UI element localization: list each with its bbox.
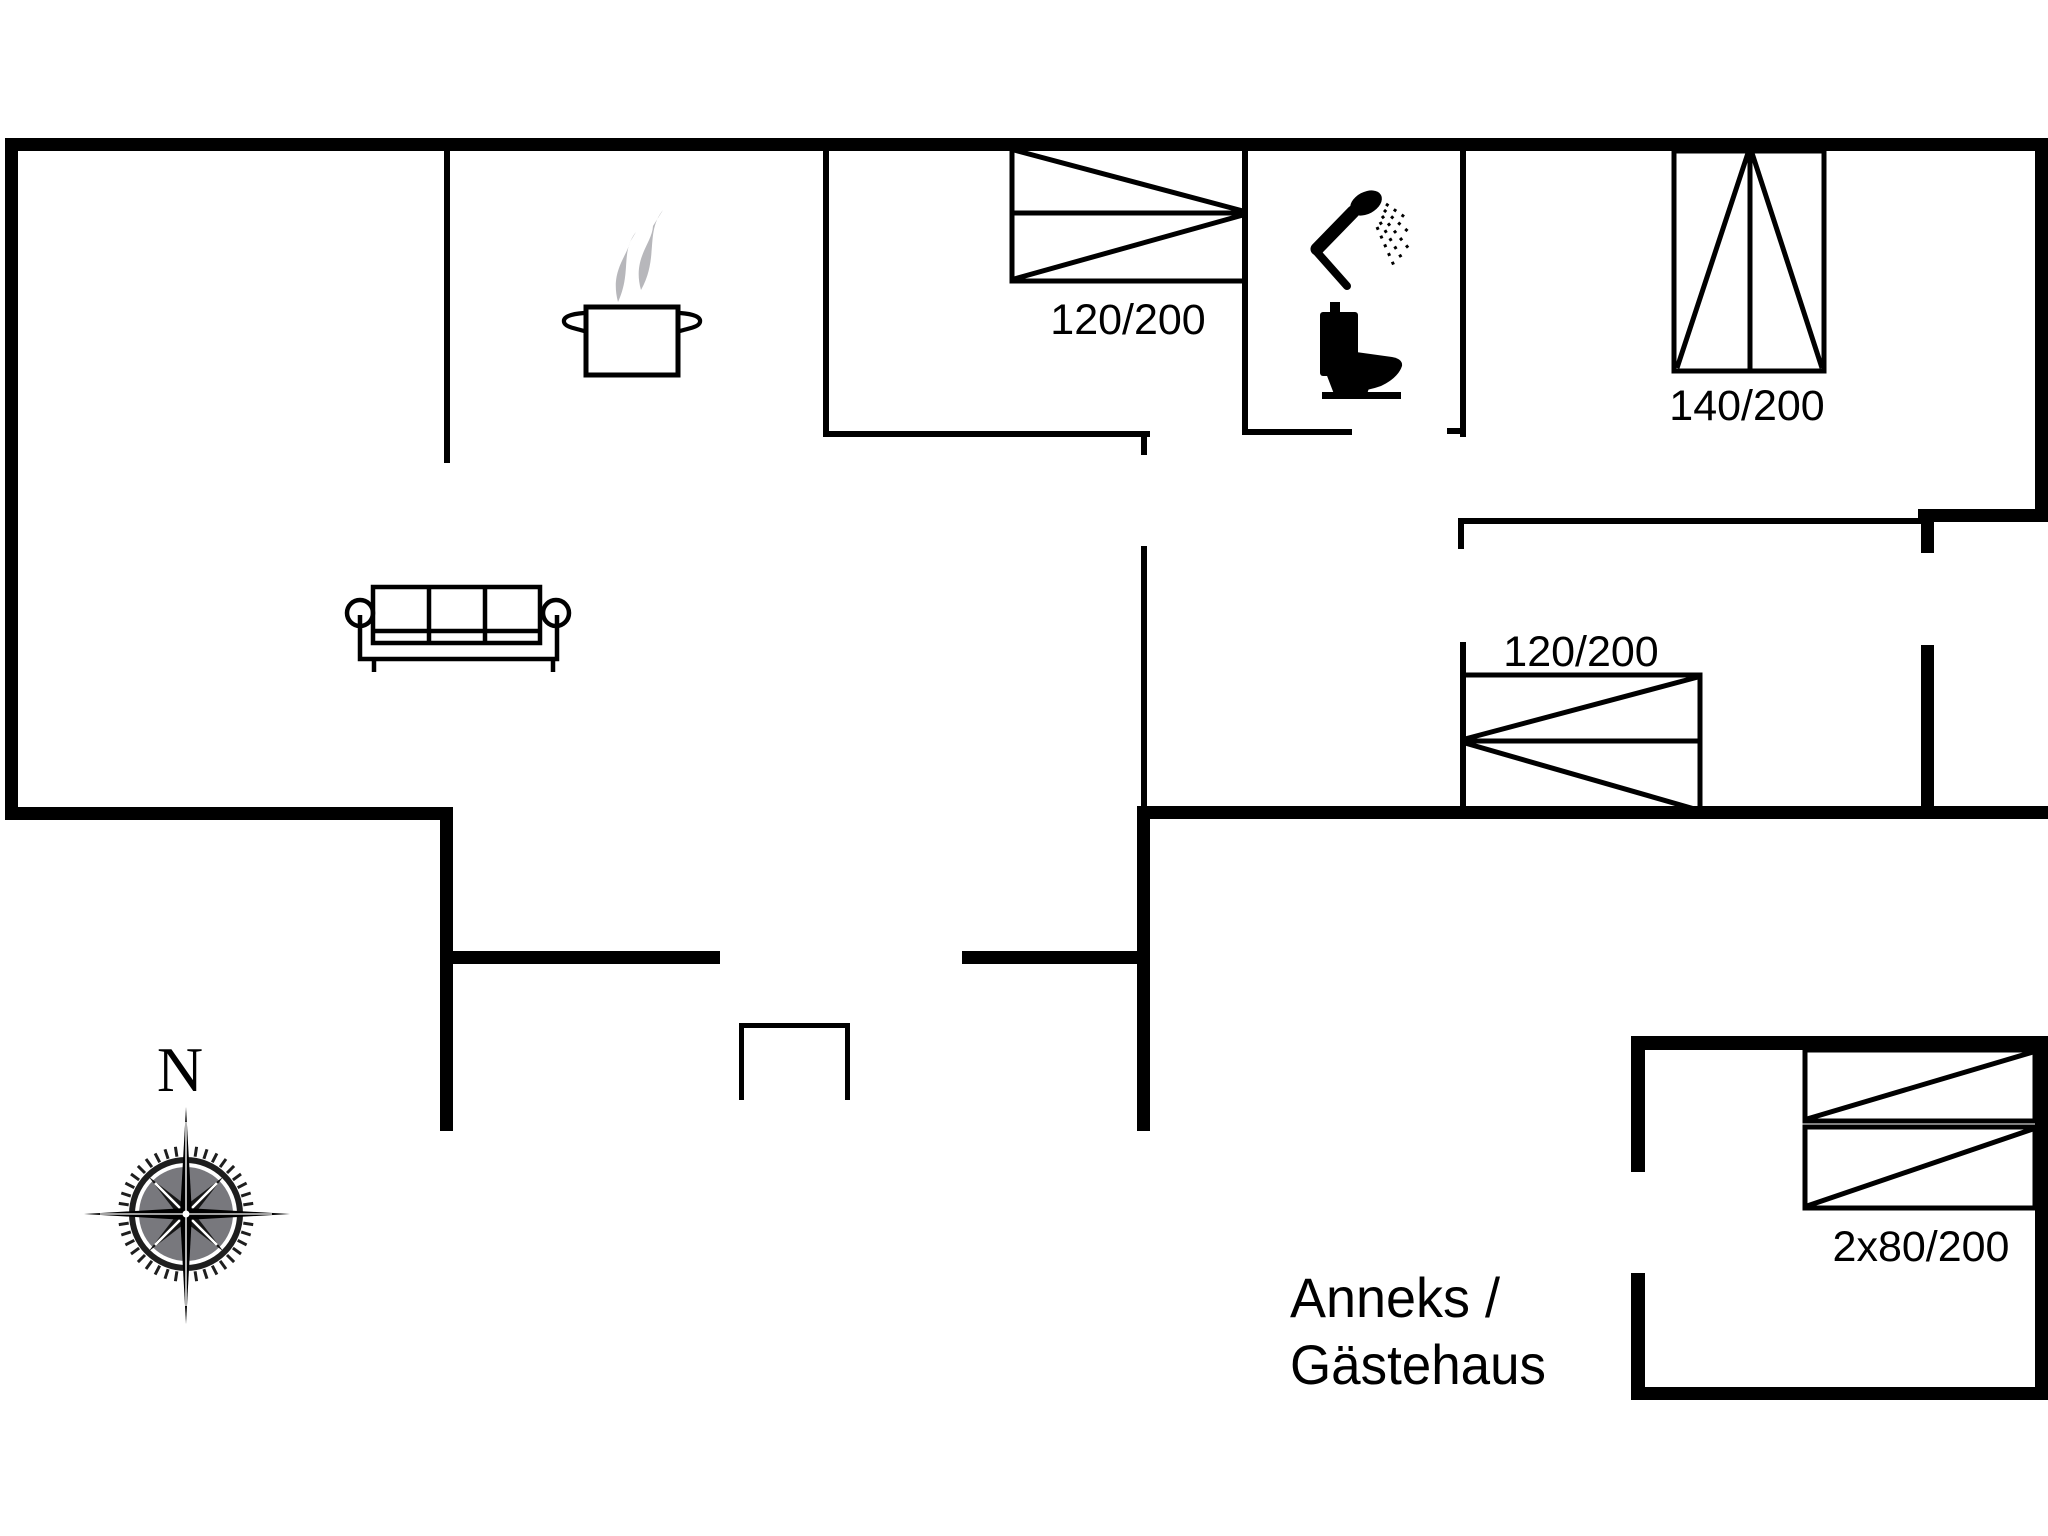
svg-text:2x80/200: 2x80/200 xyxy=(1833,1223,2010,1271)
svg-text:140/200: 140/200 xyxy=(1669,382,1824,430)
svg-text:N: N xyxy=(157,1034,203,1105)
svg-text:120/200: 120/200 xyxy=(1050,296,1205,344)
svg-text:Anneks /: Anneks / xyxy=(1290,1266,1500,1329)
svg-text:Gästehaus: Gästehaus xyxy=(1290,1333,1546,1396)
svg-text:120/200: 120/200 xyxy=(1503,628,1658,676)
